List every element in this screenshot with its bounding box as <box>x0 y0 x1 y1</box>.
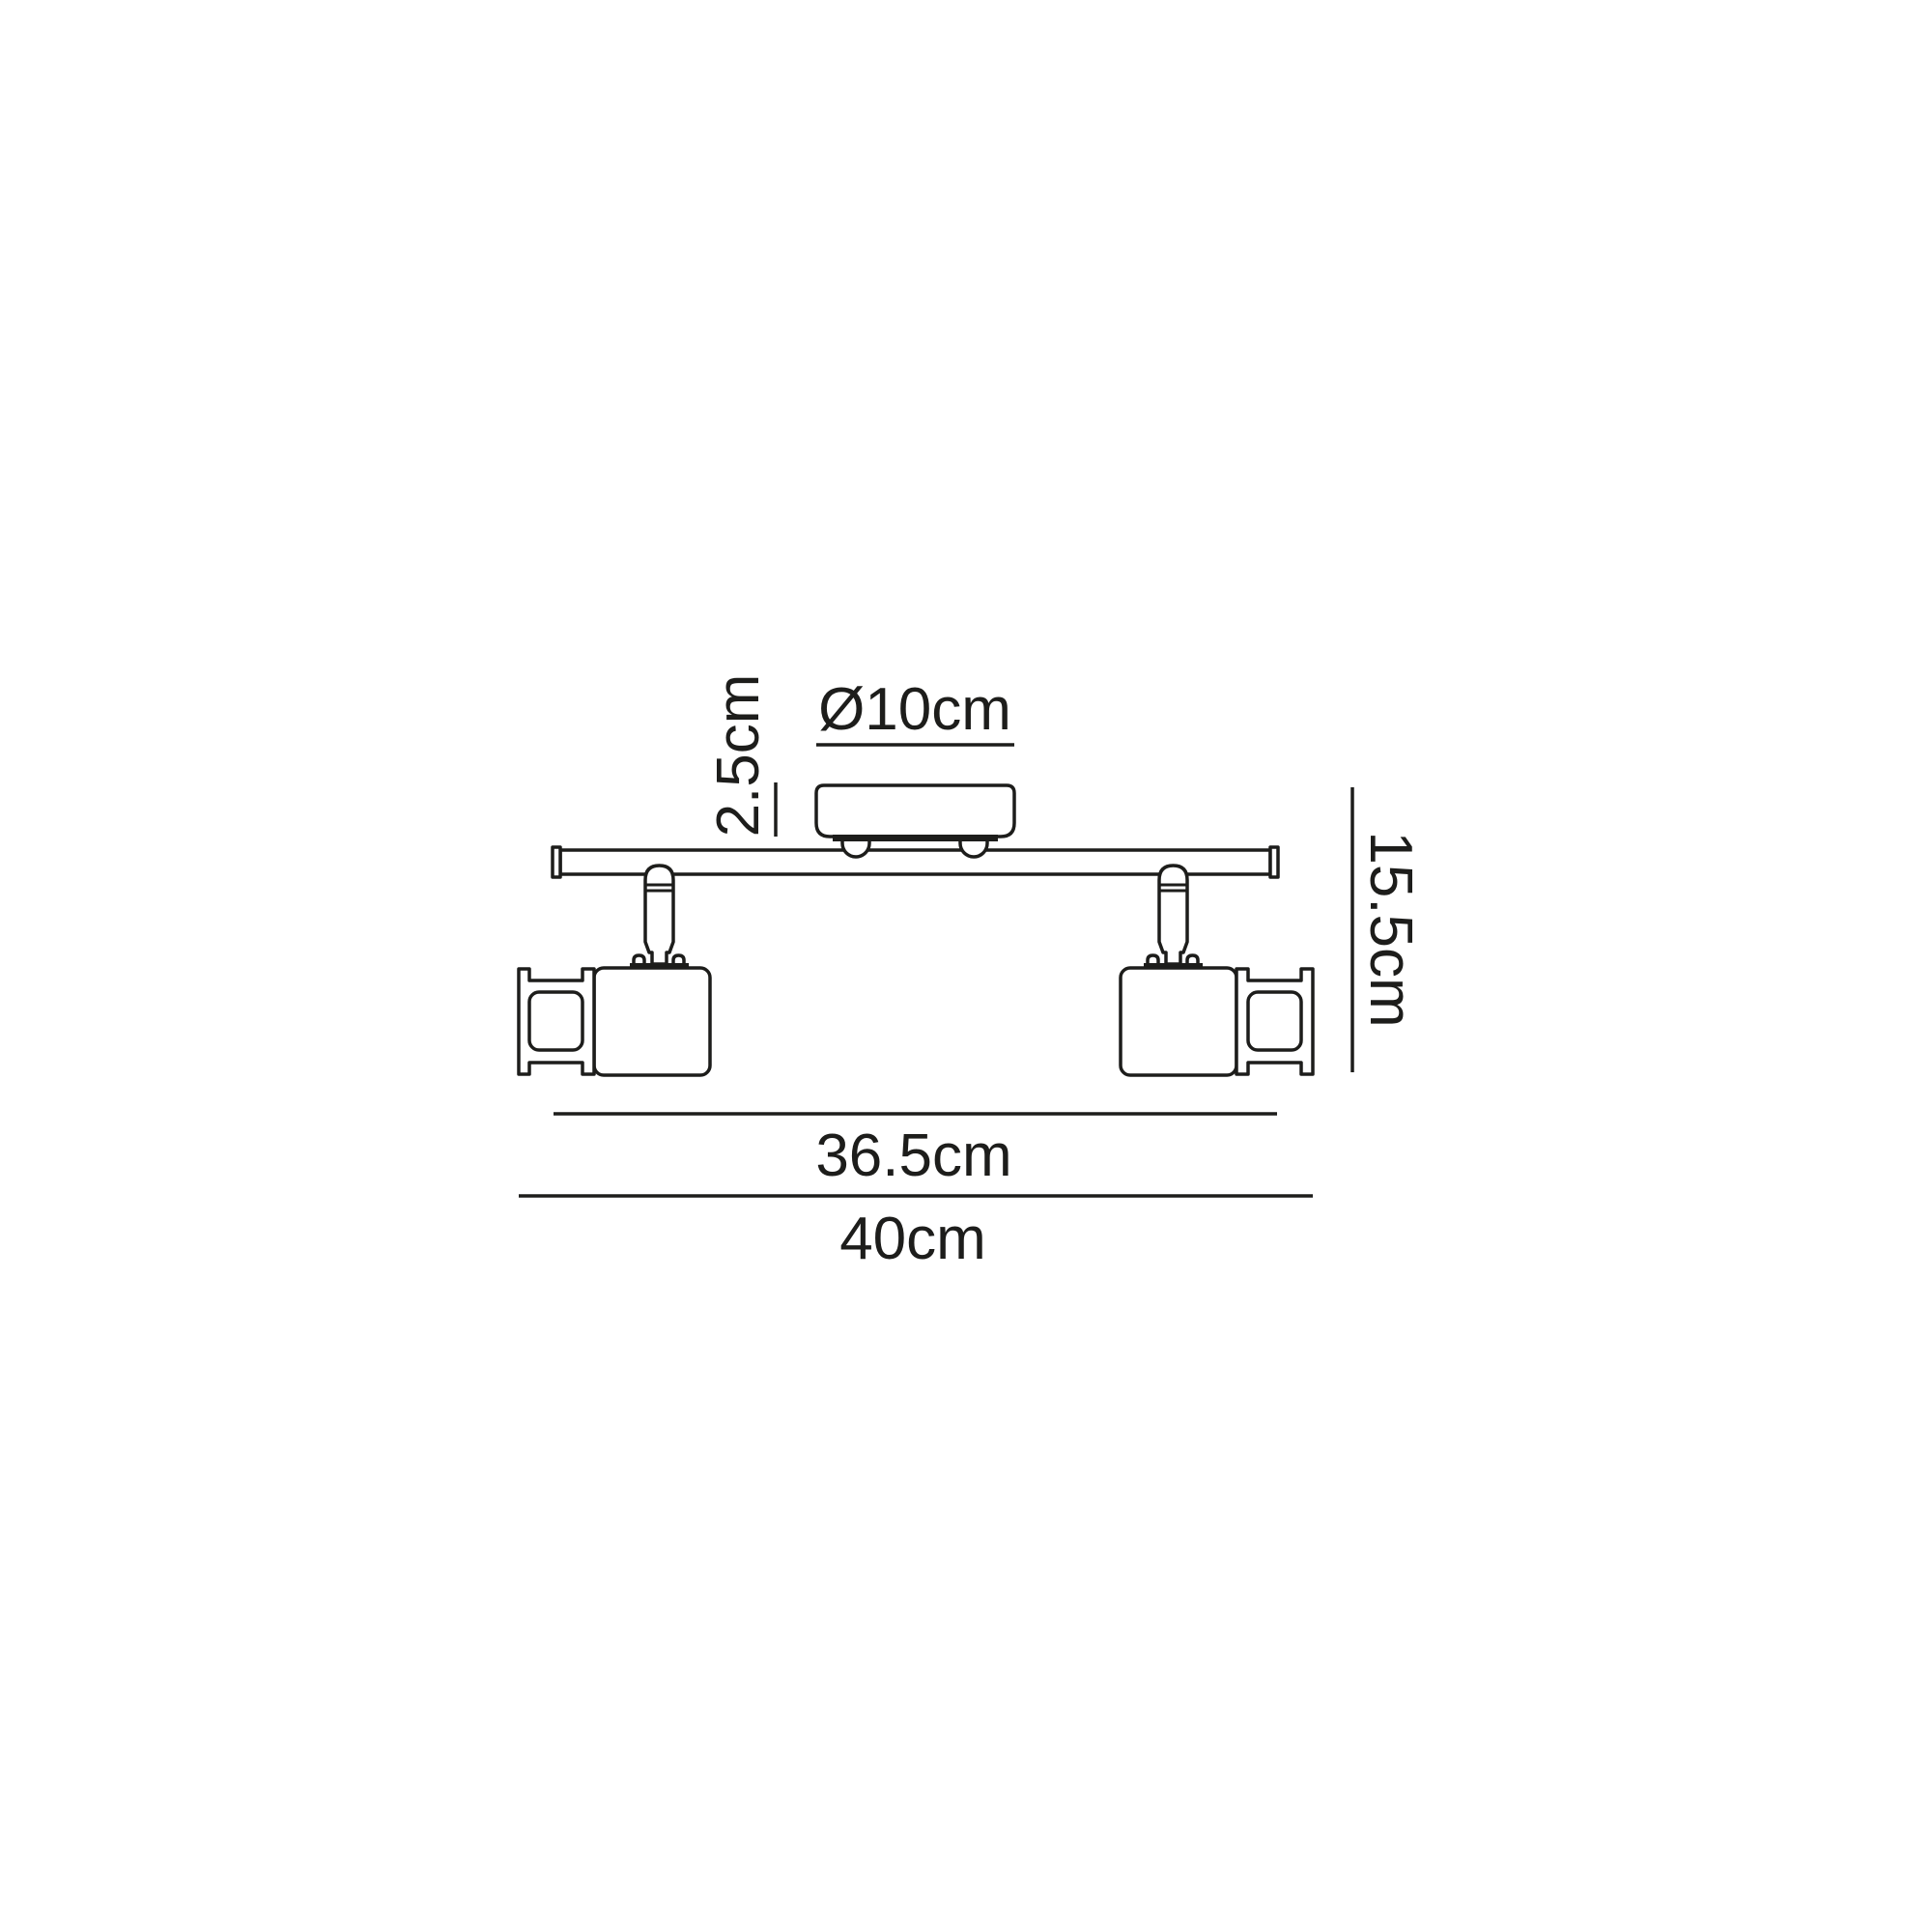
bar-end-cap-left <box>553 847 560 877</box>
label-canopy-diameter: Ø10cm <box>818 676 1011 743</box>
spot-body-left <box>594 968 710 1075</box>
spot-lens-right <box>1248 992 1301 1050</box>
label-fixture-height: 15.5cm <box>1357 831 1424 1027</box>
canopy-baseplate <box>833 835 998 841</box>
diagram-canvas: Ø10cm 2.5cm 15.5cm 36.5cm 40cm <box>0 0 1932 1932</box>
ceiling-canopy <box>816 785 1014 837</box>
label-canopy-height: 2.5cm <box>705 674 772 838</box>
bar-end-cap-right <box>1270 847 1278 877</box>
swivel-stem-right <box>1159 866 1187 964</box>
swivel-stem-left <box>645 866 673 964</box>
spotlight-dimension-drawing: Ø10cm 2.5cm 15.5cm 36.5cm 40cm <box>0 0 1932 1932</box>
spot-body-right <box>1121 968 1236 1075</box>
spot-lens-left <box>529 992 582 1050</box>
label-overall-width: 40cm <box>839 1206 986 1272</box>
label-bar-length: 36.5cm <box>815 1122 1011 1189</box>
